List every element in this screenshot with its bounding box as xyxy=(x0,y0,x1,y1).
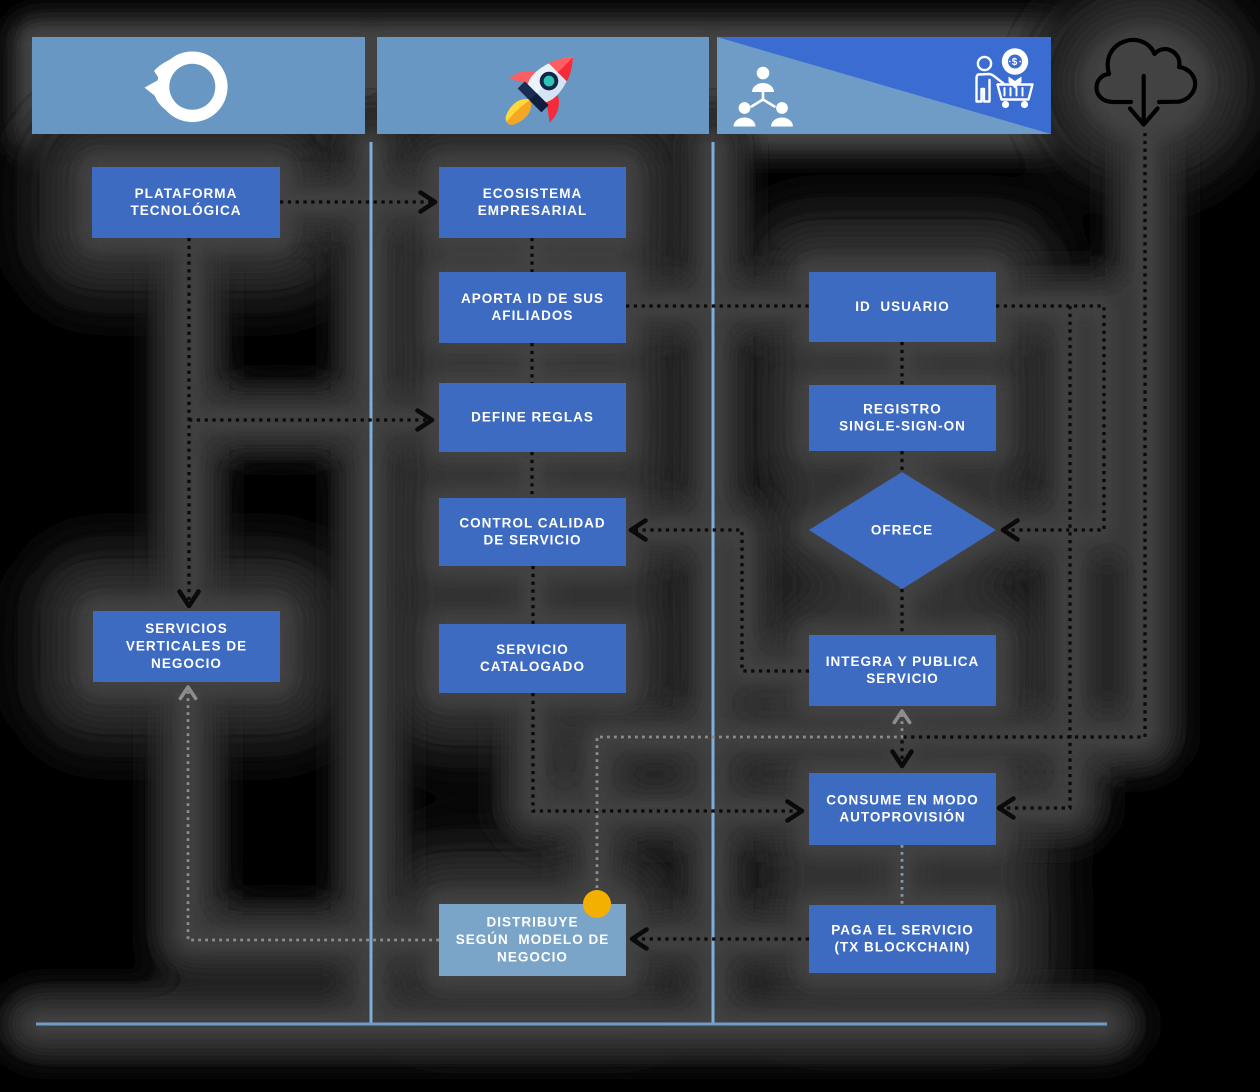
svg-text:AFILIADOS: AFILIADOS xyxy=(492,308,574,323)
svg-text:PLATAFORMA: PLATAFORMA xyxy=(135,186,238,201)
svg-text:OFRECE: OFRECE xyxy=(871,522,933,537)
svg-text:PAGA EL SERVICIO: PAGA EL SERVICIO xyxy=(831,922,974,937)
svg-text:NEGOCIO: NEGOCIO xyxy=(151,656,222,671)
svg-text:SINGLE-SIGN-ON: SINGLE-SIGN-ON xyxy=(839,419,966,434)
svg-text:ID USUARIO: ID USUARIO xyxy=(855,299,949,314)
svg-text:$: $ xyxy=(1012,57,1019,68)
svg-text:CONSUME EN MODO: CONSUME EN MODO xyxy=(826,792,979,807)
svg-text:TECNOLÓGICA: TECNOLÓGICA xyxy=(131,203,242,218)
svg-text:EMPRESARIAL: EMPRESARIAL xyxy=(478,203,587,218)
svg-text:DE SERVICIO: DE SERVICIO xyxy=(484,533,582,548)
svg-text:(TX BLOCKCHAIN): (TX BLOCKCHAIN) xyxy=(834,940,970,955)
svg-text:APORTA ID DE SUS: APORTA ID DE SUS xyxy=(461,291,604,306)
svg-text:ECOSISTEMA: ECOSISTEMA xyxy=(483,186,582,201)
svg-text:DISTRIBUYE: DISTRIBUYE xyxy=(487,915,579,930)
svg-text:NEGOCIO: NEGOCIO xyxy=(497,949,568,964)
svg-text:CONTROL CALIDAD: CONTROL CALIDAD xyxy=(459,515,605,530)
svg-text:SERVICIOS: SERVICIOS xyxy=(145,621,227,636)
svg-text:AUTOPROVISIÓN: AUTOPROVISIÓN xyxy=(839,810,965,825)
svg-text:CATALOGADO: CATALOGADO xyxy=(480,659,585,674)
svg-text:REGISTRO: REGISTRO xyxy=(863,401,942,416)
svg-text:SERVICIO: SERVICIO xyxy=(496,642,568,657)
svg-text:DEFINE REGLAS: DEFINE REGLAS xyxy=(471,409,594,424)
svg-text:SERVICIO: SERVICIO xyxy=(866,671,938,686)
svg-text:SEGÚN MODELO DE: SEGÚN MODELO DE xyxy=(456,932,610,947)
svg-text:INTEGRA Y PUBLICA: INTEGRA Y PUBLICA xyxy=(826,654,980,669)
svg-text:VERTICALES DE: VERTICALES DE xyxy=(126,638,247,653)
